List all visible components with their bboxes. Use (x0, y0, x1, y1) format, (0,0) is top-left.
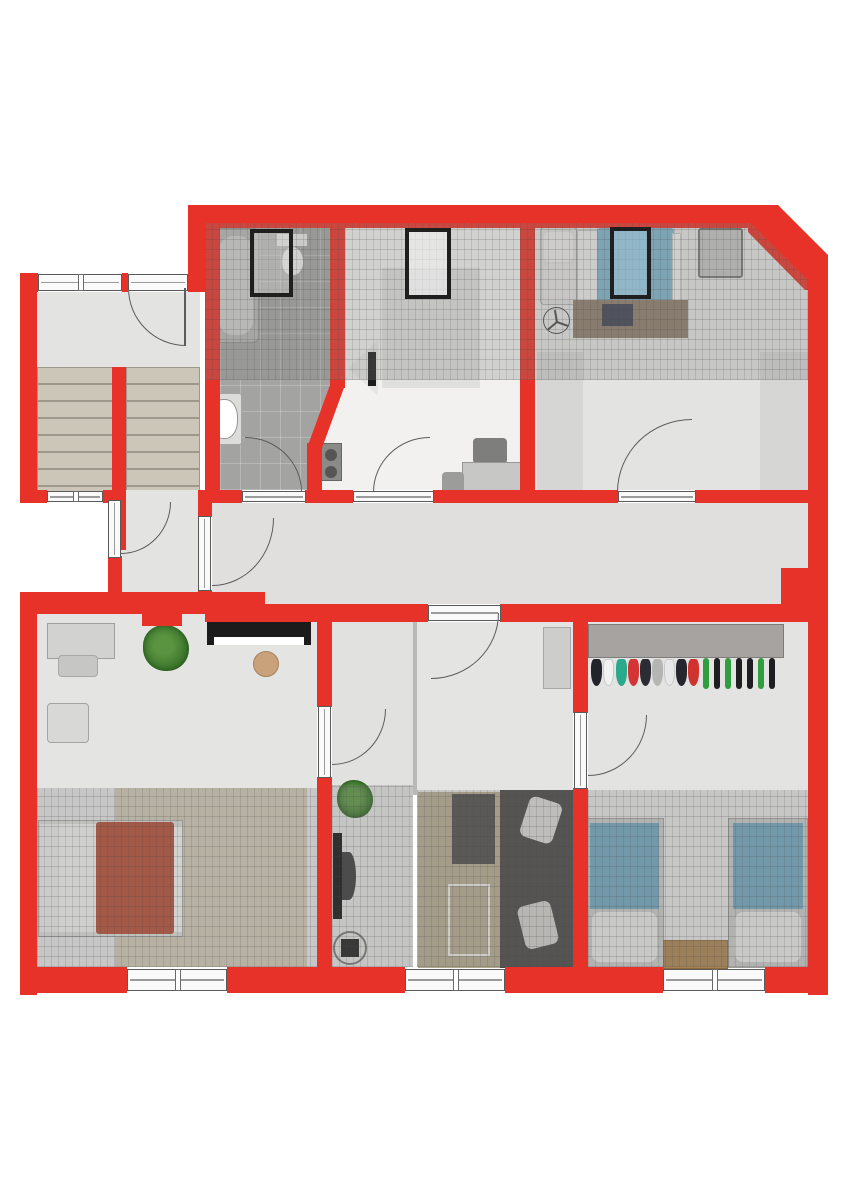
window-kids-bottom (663, 969, 765, 991)
skylight-bathroom (250, 229, 293, 297)
wall-kitchen-bottom-1 (307, 490, 353, 503)
door-hall-corridor-threshold (198, 516, 211, 591)
skylight-kitchen (405, 228, 451, 299)
garment (603, 659, 614, 686)
wall-hall-left (108, 556, 122, 612)
stair-flight-right (126, 367, 200, 505)
pants (769, 658, 775, 689)
wall-lounge-kids-1 (573, 612, 588, 713)
door-leaf-entry (184, 288, 186, 346)
wall-living-strip-1 (317, 612, 332, 707)
roof-slope-overlay-strip (332, 785, 413, 967)
garment (664, 659, 675, 686)
roof-slope-overlay-top (205, 223, 813, 380)
wall-bedroom-bottom-2 (695, 490, 808, 503)
cooktop-burner-1 (325, 449, 337, 461)
partition-thin (413, 622, 417, 795)
roof-slope-overlay-lounge (417, 790, 573, 967)
floor-corridor (212, 503, 808, 604)
window-living-bottom (127, 969, 227, 991)
kitchen-desk (462, 462, 528, 492)
wall-lounge-kids-2 (573, 788, 588, 969)
wall-chimney-bump (142, 604, 182, 626)
window-stair-top (38, 274, 122, 291)
floor-plan (0, 0, 848, 1200)
living-desk-chair (58, 655, 98, 677)
wall-hall-corridor-2 (198, 590, 212, 614)
plant-living (143, 625, 189, 671)
door-bedroom-threshold (618, 491, 696, 502)
wall-corridor-bottom-2 (500, 604, 808, 622)
wall-bottom-4 (765, 967, 828, 993)
wall-bedroom-bottom-1 (535, 490, 618, 503)
door-hall-left-threshold (108, 500, 121, 558)
garment (652, 659, 663, 686)
pants (758, 658, 764, 689)
door-kitchen-threshold (353, 491, 434, 502)
wall-corridor-notch (781, 568, 808, 608)
kitchen-chair-1 (473, 438, 507, 464)
pants (714, 658, 720, 689)
garment (628, 659, 639, 686)
living-armchair (47, 703, 89, 743)
wall-bathroom-bottom-1 (205, 490, 242, 503)
door-bathroom-threshold (242, 491, 306, 502)
wall-stair-top-2 (188, 273, 205, 292)
lounge-sideboard (543, 627, 571, 689)
wall-right (808, 276, 828, 995)
door-strip-threshold (318, 706, 331, 778)
living-desk (47, 623, 115, 659)
wall-stair-left (20, 273, 37, 503)
roof-slope-overlay-kids (588, 790, 808, 967)
window-stair-bottom (47, 491, 103, 502)
garment (676, 659, 687, 686)
garment (616, 659, 627, 686)
piano-keys (214, 637, 304, 645)
window-lounge-bottom (405, 969, 505, 991)
pants (703, 658, 709, 689)
garment (591, 659, 602, 686)
skylight-bedroom (610, 227, 651, 299)
pants (747, 658, 753, 689)
wall-bottom-2 (227, 967, 405, 993)
wall-stair-bottom-1 (20, 490, 47, 503)
garment (640, 659, 651, 686)
cooktop-burner-2 (325, 466, 337, 478)
wall-living-strip-2 (317, 777, 332, 969)
stool-round (253, 651, 279, 677)
wall-stair-top-1 (20, 273, 38, 292)
stair-flight-left (37, 367, 113, 492)
wall-left-lower (20, 592, 37, 995)
pants (725, 658, 731, 689)
wall-bottom-3 (505, 967, 663, 993)
wardrobe-rail (588, 624, 784, 658)
roof-slope-overlay-living (37, 788, 318, 967)
garment (688, 659, 699, 686)
door-kids-threshold (574, 712, 587, 789)
pants (736, 658, 742, 689)
